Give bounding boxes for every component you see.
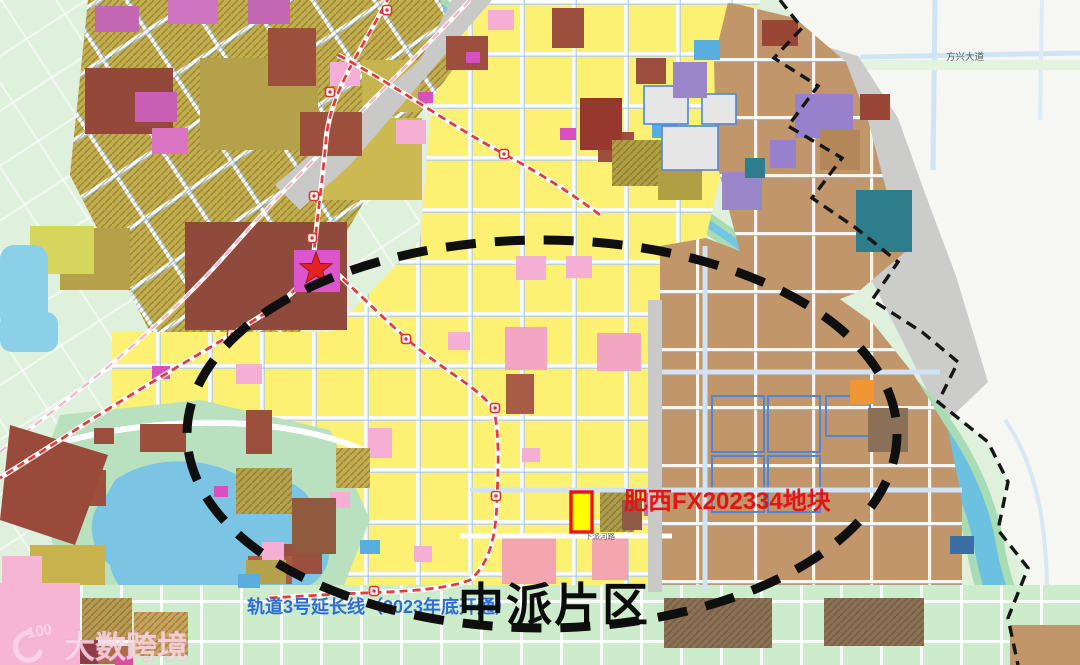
road-label-xiapaihe: 下派河路 [585,531,615,541]
road-label-fangxing: 方兴大道 [946,51,985,63]
metro-station-icon [492,492,501,501]
metro-station-icon [326,88,335,97]
planning-map: 轨道3号延长线（2023年底开通） 中派片区 肥西FX202334地块 方兴大道… [0,0,1080,665]
district-zone-title: 中派片区 [458,579,650,631]
metro-station-icon [402,335,411,344]
highlighted-parcel-label: 肥西FX202334地块 [624,488,831,515]
pink-parcel-west [2,556,42,584]
highlighted-parcel [571,492,592,532]
metro-station-icon [310,192,319,201]
metro-station-icon [491,404,500,413]
metro-station-icon [370,587,379,596]
watermark-brand-text: 大数跨境 [64,630,188,665]
metro-station-icon [500,150,509,159]
planning-map-screenshot: 轨道3号延长线（2023年底开通） 中派片区 肥西FX202334地块 方兴大道… [0,0,1080,665]
metro-station-icon [308,234,317,243]
metro-station-icon [383,6,392,15]
